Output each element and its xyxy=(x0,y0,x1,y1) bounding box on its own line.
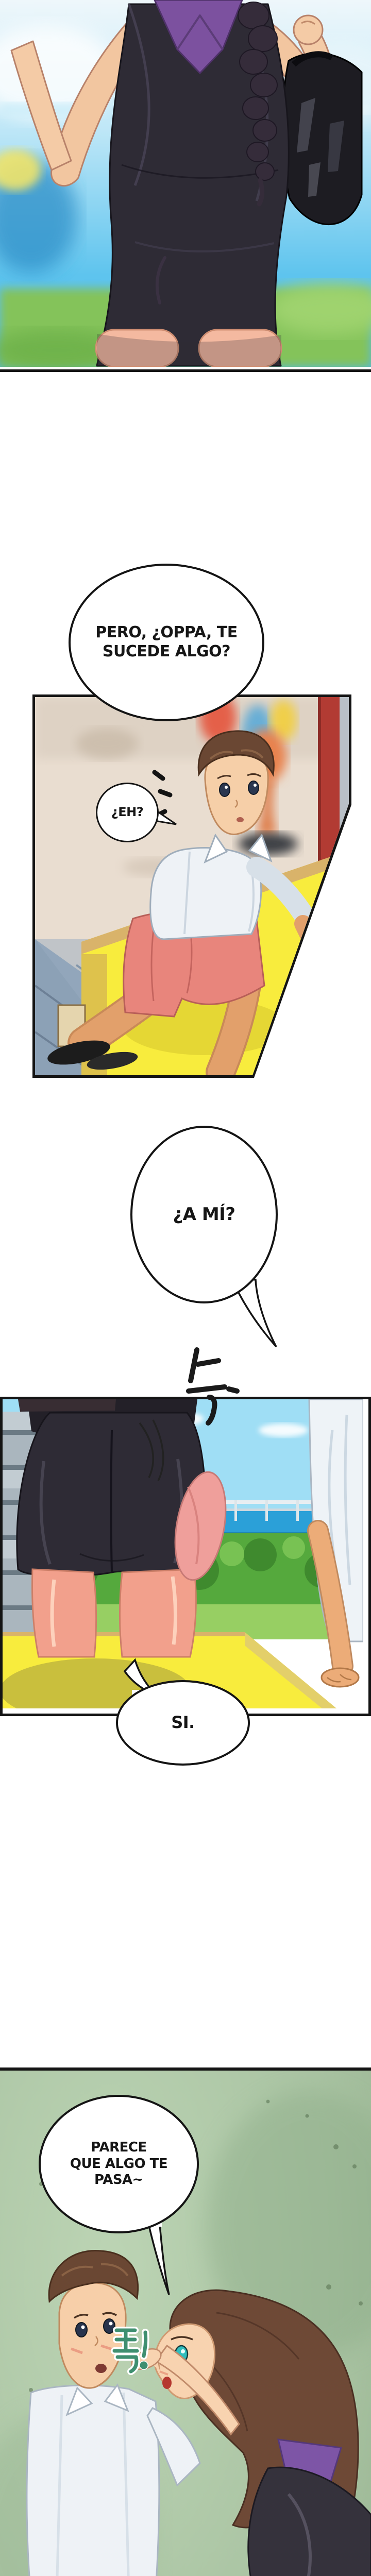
speech-text: PERO, ¿OPPA, TE SUCEDE ALGO? xyxy=(95,623,237,661)
panel-man-bench xyxy=(35,697,349,1075)
speech-text: ¿EH? xyxy=(111,805,143,820)
speech-bubble-si: SI. xyxy=(116,1680,250,1766)
bubble-parece-tail xyxy=(144,2221,175,2298)
panel-woman-behind xyxy=(0,1397,371,1716)
speech-bubble-pero: PERO, ¿OPPA, TE SUCEDE ALGO? xyxy=(69,564,264,721)
panel-woman-walking xyxy=(0,0,371,372)
webtoon-page: PERO, ¿OPPA, TE SUCEDE ALGO? xyxy=(0,0,371,2576)
speech-bubble-parece: PARECE QUE ALGO TE PASA~ xyxy=(39,2095,199,2233)
speech-bubble-a-mi: ¿A MÍ? xyxy=(130,1126,278,1303)
speech-bubble-eh: ¿EH? xyxy=(96,783,159,842)
speech-text: PARECE QUE ALGO TE PASA~ xyxy=(70,2140,167,2189)
sfx-deuk-korean xyxy=(181,1344,241,1426)
speech-text: ¿A MÍ? xyxy=(173,1204,235,1225)
black-plastic-bag xyxy=(282,53,362,224)
speech-text: SI. xyxy=(171,1713,195,1733)
